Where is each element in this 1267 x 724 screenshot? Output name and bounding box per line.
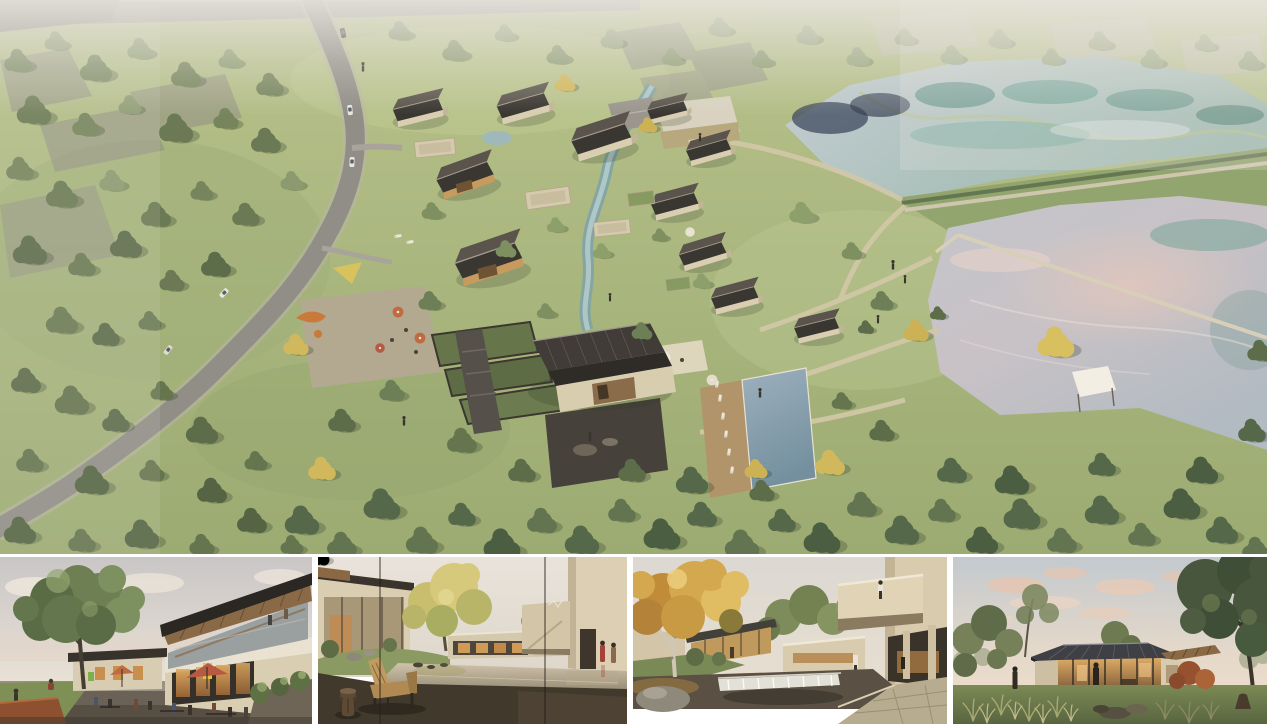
village-pond xyxy=(482,131,512,145)
green-roof-1 xyxy=(627,190,654,206)
green-roof-2 xyxy=(665,277,690,292)
car-white-2 xyxy=(349,157,354,167)
umbrella-white-pool xyxy=(707,375,718,386)
thumbnail-strip xyxy=(0,557,1267,724)
hero-aerial-scene xyxy=(0,0,1267,554)
panel-render-courtyard-pond xyxy=(318,557,627,724)
umbrella-orange-2 xyxy=(415,333,426,344)
umbrella-white-lawn xyxy=(685,227,695,237)
panel-render-waterfall-court xyxy=(633,557,947,724)
left-haze xyxy=(0,0,160,554)
corner-haze xyxy=(900,0,1267,170)
umbrella-orange-3 xyxy=(375,343,385,353)
presentation-board xyxy=(0,0,1267,724)
hero-aerial-render xyxy=(0,0,1267,554)
person-silhouette xyxy=(1012,666,1017,689)
panel-render-plaza xyxy=(0,557,312,724)
umbrella-orange-1 xyxy=(393,307,404,318)
cantilever-box xyxy=(522,601,570,649)
panel-render-dusk-pavilion xyxy=(953,557,1267,724)
dark-doorway xyxy=(580,629,596,669)
green-sign xyxy=(88,672,94,681)
